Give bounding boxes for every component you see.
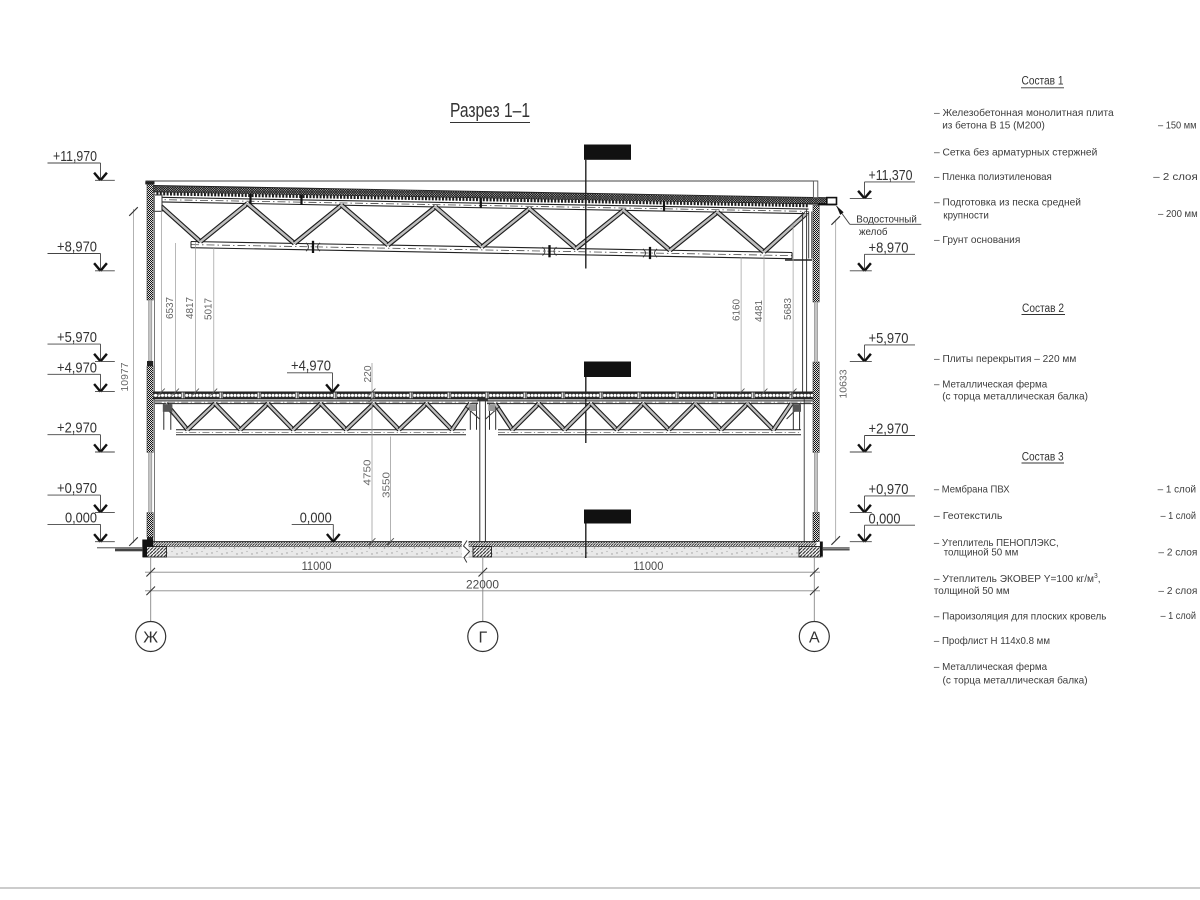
svg-text:0,000: 0,000 [300, 510, 332, 527]
svg-text:+11,370: +11,370 [869, 167, 913, 184]
svg-text:(с торца металлическая балка): (с торца металлическая балка) [943, 675, 1088, 687]
svg-text:+5,970: +5,970 [869, 330, 909, 347]
svg-text:Состав 3: Состав 3 [1022, 452, 1064, 464]
svg-text:0,000: 0,000 [869, 510, 901, 527]
svg-text:4817: 4817 [185, 297, 196, 319]
svg-text:толщиной 50 мм: толщиной 50 мм [944, 546, 1019, 558]
svg-text:– 2 слоя: – 2 слоя [1153, 171, 1197, 183]
svg-text:– Железобетонная монолитная п: – Железобетонная монолитная плита [934, 107, 1114, 119]
svg-text:+0,970: +0,970 [57, 480, 97, 497]
svg-text:– Плиты перекрытия – 220 мм: – Плиты перекрытия – 220 мм [934, 353, 1076, 365]
svg-text:– 1 слой: – 1 слой [1158, 483, 1197, 495]
svg-text:4750: 4750 [363, 459, 374, 486]
svg-text:желоб: желоб [859, 226, 888, 238]
svg-text:– Утеплитель ЭКОВЕР Y=100 кг/м: – Утеплитель ЭКОВЕР Y=100 кг/м3, [934, 573, 1101, 585]
svg-text:(с торца металлическая балка): (с торца металлическая балка) [942, 390, 1088, 402]
svg-text:А: А [809, 629, 820, 646]
svg-text:22000: 22000 [466, 578, 499, 592]
svg-text:– 2 слоя: – 2 слоя [1158, 585, 1197, 597]
svg-text:10633: 10633 [839, 369, 850, 398]
svg-text:из бетона В 15 (М200): из бетона В 15 (М200) [942, 120, 1045, 132]
svg-text:Состав 2: Состав 2 [1022, 303, 1064, 315]
svg-text:– Геотекстиль: – Геотекстиль [934, 510, 1003, 522]
svg-text:10977: 10977 [120, 362, 131, 391]
svg-text:3550: 3550 [382, 471, 393, 498]
svg-text:Г: Г [478, 629, 487, 646]
svg-text:+0,970: +0,970 [869, 481, 909, 498]
svg-text:крупности: крупности [943, 209, 989, 221]
svg-text:– Металлическая ферма: – Металлическая ферма [934, 661, 1047, 673]
svg-text:6160: 6160 [732, 299, 743, 321]
svg-text:– 2 слоя: – 2 слоя [1158, 546, 1197, 558]
svg-text:– 150 мм: – 150 мм [1158, 120, 1197, 132]
svg-text:11000: 11000 [633, 559, 663, 573]
svg-text:– Металлическая ферма: – Металлическая ферма [934, 379, 1047, 391]
svg-text:220: 220 [363, 365, 374, 382]
svg-text:– Мембрана ПВХ: – Мембрана ПВХ [934, 483, 1010, 495]
svg-text:+8,970: +8,970 [869, 240, 909, 257]
svg-text:0,000: 0,000 [65, 509, 97, 526]
svg-text:– Грунт основания: – Грунт основания [934, 234, 1020, 246]
svg-text:– Пароизоляция для плоских кро: – Пароизоляция для плоских кровель [934, 611, 1107, 623]
svg-text:+8,970: +8,970 [57, 239, 97, 256]
svg-text:+2,970: +2,970 [869, 421, 909, 438]
svg-text:Состав 1: Состав 1 [1022, 76, 1064, 88]
svg-text:4481: 4481 [754, 300, 765, 322]
svg-text:+11,970: +11,970 [53, 148, 97, 165]
svg-text:5017: 5017 [204, 298, 215, 320]
svg-text:Водосточный: Водосточный [856, 214, 917, 226]
svg-text:+2,970: +2,970 [57, 420, 97, 437]
svg-text:5683: 5683 [783, 298, 794, 320]
svg-text:толщиной 50 мм: толщиной 50 мм [934, 585, 1010, 597]
svg-text:– Пленка полиэтиленовая: – Пленка полиэтиленовая [934, 171, 1052, 183]
svg-text:11000: 11000 [302, 559, 332, 573]
svg-text:Разрез 1–1: Разрез 1–1 [450, 100, 530, 122]
svg-text:+4,970: +4,970 [57, 359, 97, 376]
svg-text:– Сетка без арматурных стержне: – Сетка без арматурных стержней [934, 146, 1097, 158]
svg-text:6537: 6537 [165, 297, 176, 319]
svg-text:Ж: Ж [143, 629, 158, 646]
svg-text:– Подготовка из песка средней: – Подготовка из песка средней [934, 197, 1081, 209]
svg-text:– 200 мм: – 200 мм [1158, 208, 1198, 220]
svg-text:– Профлист Н 114х0.8 мм: – Профлист Н 114х0.8 мм [934, 635, 1050, 647]
svg-text:+5,970: +5,970 [57, 329, 97, 346]
svg-text:– 1 слой: – 1 слой [1161, 510, 1197, 522]
svg-text:– 1 слой: – 1 слой [1161, 610, 1197, 622]
svg-text:+4,970: +4,970 [291, 358, 331, 375]
